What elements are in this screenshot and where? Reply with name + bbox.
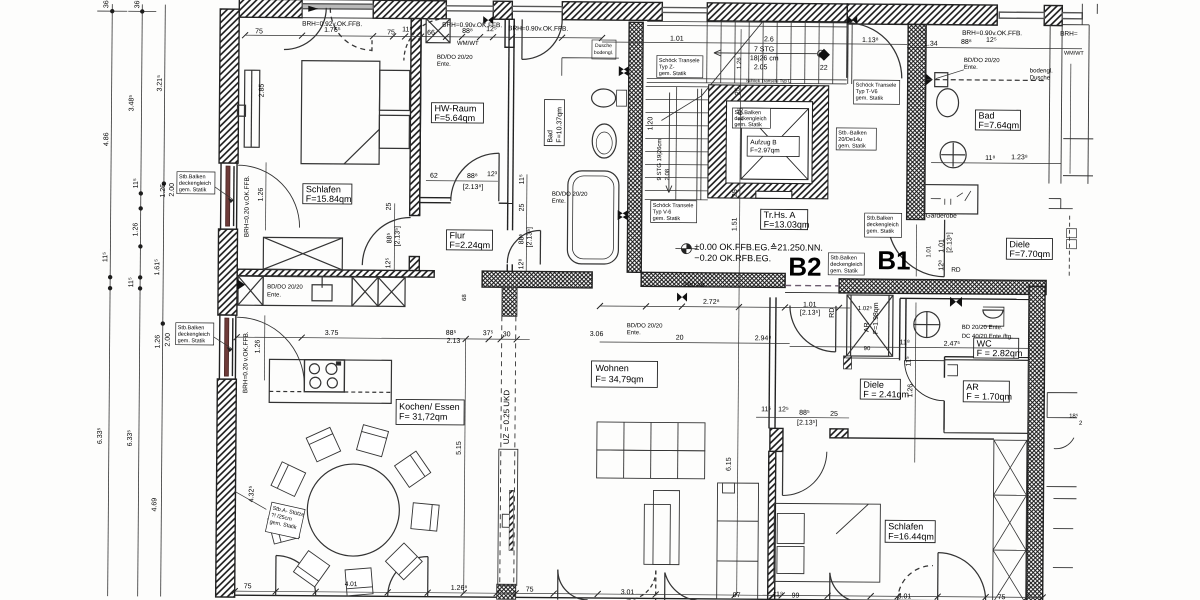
svg-text:Dusche: Dusche <box>595 43 612 49</box>
svg-text:WM/WT: WM/WT <box>1064 51 1085 57</box>
svg-text:25: 25 <box>732 189 739 197</box>
svg-text:WM/WT: WM/WT <box>457 41 479 47</box>
svg-text:gem. Statik: gem. Statik <box>659 71 687 77</box>
svg-text:07: 07 <box>733 592 741 599</box>
svg-text:BRH=: BRH= <box>1060 31 1078 38</box>
svg-text:BD/DO 20/20: BD/DO 20/20 <box>627 323 663 329</box>
svg-text:Stb.-Balken: Stb.-Balken <box>838 130 866 136</box>
svg-text:2.6: 2.6 <box>764 36 774 43</box>
svg-text:25: 25 <box>386 202 393 210</box>
svg-text:2.94⁸: 2.94⁸ <box>755 335 772 342</box>
svg-text:75: 75 <box>244 583 252 590</box>
svg-text:F= 34,79qm: F= 34,79qm <box>595 374 643 384</box>
svg-text:4.86: 4.86 <box>103 132 110 146</box>
svg-text:11⁵: 11⁵ <box>128 277 135 287</box>
svg-text:2.47⁵: 2.47⁵ <box>944 341 961 348</box>
svg-text:88⁶: 88⁶ <box>518 234 525 245</box>
svg-text:2.72⁸: 2.72⁸ <box>703 299 720 306</box>
svg-text:AR: AR <box>864 322 871 332</box>
svg-text:20: 20 <box>676 335 684 342</box>
svg-text:Ente.: Ente. <box>964 65 978 71</box>
svg-text:11⁵: 11⁵ <box>761 406 771 413</box>
svg-text:75: 75 <box>387 29 395 36</box>
svg-text:±0.00 OK.FFB.EG.≙21.250.NN.: ±0.00 OK.FFB.EG.≙21.250.NN. <box>694 242 823 253</box>
svg-text:1.26: 1.26 <box>132 223 139 237</box>
svg-text:1.76⁵: 1.76⁵ <box>324 27 341 34</box>
svg-text:3.75: 3.75 <box>325 330 339 337</box>
svg-text:4.69: 4.69 <box>151 498 158 512</box>
svg-text:BD/DO 20/20: BD/DO 20/20 <box>964 58 1000 64</box>
svg-text:[2.13⁵]: [2.13⁵] <box>797 420 818 427</box>
svg-text:F= 31,72qm: F= 31,72qm <box>399 411 447 421</box>
svg-text:deckengleich: deckengleich <box>179 181 211 187</box>
svg-text:Wohnen: Wohnen <box>595 363 628 373</box>
svg-text:UZ = 0.25 UKD: UZ = 0.25 UKD <box>502 390 511 445</box>
svg-text:BD/DO 20/20: BD/DO 20/20 <box>552 192 588 198</box>
svg-text:[2.13⁵]: [2.13⁵] <box>946 232 953 253</box>
svg-text:22: 22 <box>820 65 828 72</box>
svg-text:25: 25 <box>519 203 526 211</box>
svg-text:gem. Statik: gem. Statik <box>653 216 681 222</box>
svg-text:BD 20/20 Ente.: BD 20/20 Ente. <box>962 325 1003 331</box>
svg-text:Stb.Balken: Stb.Balken <box>830 255 857 261</box>
svg-text:30: 30 <box>503 331 511 338</box>
svg-text:6.33⁵: 6.33⁵ <box>97 427 104 444</box>
svg-text:6.33⁵: 6.33⁵ <box>127 430 134 447</box>
svg-text:Typ V-6: Typ V-6 <box>653 209 672 215</box>
svg-text:1.02⁵: 1.02⁵ <box>858 305 873 312</box>
svg-text:gem. Statik: gem. Statik <box>178 338 206 344</box>
svg-text:62: 62 <box>430 173 438 180</box>
svg-text:12⁵: 12⁵ <box>385 258 392 269</box>
svg-text:88⁵: 88⁵ <box>799 410 810 417</box>
svg-text:12⁵: 12⁵ <box>486 26 497 33</box>
svg-text:Typ Z-: Typ Z- <box>659 64 675 70</box>
svg-text:1.61⁵: 1.61⁵ <box>154 259 161 276</box>
svg-text:88⁵: 88⁵ <box>446 330 457 337</box>
svg-text:Ente.: Ente. <box>437 62 451 68</box>
svg-text:[2.13⁵]: [2.13⁵] <box>526 227 533 248</box>
svg-text:37⁵: 37⁵ <box>483 330 494 337</box>
svg-text:2.13: 2.13 <box>447 338 461 345</box>
svg-text:Ente.: Ente. <box>267 292 281 298</box>
svg-text:12⁵: 12⁵ <box>778 406 789 413</box>
svg-text:F=13.03qm: F=13.03qm <box>764 219 810 229</box>
svg-text:Schöck Transele: Schöck Transele <box>659 58 700 64</box>
svg-text:36⁵: 36⁵ <box>103 0 110 8</box>
svg-text:Schöck Transele: Schöck Transele <box>856 83 897 89</box>
svg-text:Ente.: Ente. <box>627 330 641 336</box>
svg-text:11⁵: 11⁵ <box>133 178 140 188</box>
svg-text:−0.20 OK.RFB.EG.: −0.20 OK.RFB.EG. <box>694 253 771 264</box>
svg-text:2.08: 2.08 <box>665 168 671 180</box>
svg-text:BRH=0.90v.OK.FFB.: BRH=0.90v.OK.FFB. <box>508 25 568 32</box>
svg-text:Schlafen: Schlafen <box>888 521 923 531</box>
svg-text:4.01: 4.01 <box>345 581 358 588</box>
svg-text:gem. Statik: gem. Statik <box>856 96 884 102</box>
svg-text:12⁸: 12⁸ <box>518 259 525 270</box>
svg-text:12⁸: 12⁸ <box>938 260 945 271</box>
svg-text:11⁵: 11⁵ <box>905 356 912 366</box>
svg-text:F=2.24qm: F=2.24qm <box>449 240 490 250</box>
svg-text:gem. Statik: gem. Statik <box>830 268 858 274</box>
svg-text:F = 2.41qm: F = 2.41qm <box>863 389 909 399</box>
svg-text:1.26: 1.26 <box>155 335 162 349</box>
svg-text:deckengleich: deckengleich <box>178 332 210 338</box>
svg-text:1.34: 1.34 <box>924 41 938 48</box>
svg-text:RD: RD <box>951 267 961 274</box>
svg-text:88⁵: 88⁵ <box>386 233 393 244</box>
svg-text:F=2.97qm: F=2.97qm <box>750 147 780 154</box>
svg-text:1.20: 1.20 <box>647 117 654 131</box>
svg-text:F=7.70qm: F=7.70qm <box>1009 249 1050 259</box>
svg-text:18|26 cm: 18|26 cm <box>750 55 779 62</box>
svg-text:11⁵: 11⁵ <box>519 174 526 184</box>
svg-text:[2.13⁸]: [2.13⁸] <box>463 184 484 191</box>
svg-text:88⁸: 88⁸ <box>961 39 972 46</box>
svg-text:2.00: 2.00 <box>165 333 172 347</box>
svg-text:3.01: 3.01 <box>621 589 635 596</box>
svg-text:bodengl.: bodengl. <box>1030 68 1053 74</box>
svg-text:66: 66 <box>427 30 435 37</box>
svg-text:25: 25 <box>830 411 838 418</box>
svg-text:2.00: 2.00 <box>169 183 176 197</box>
svg-text:RD: RD <box>829 308 836 318</box>
svg-text:gem. Statik: gem. Statik <box>734 122 762 128</box>
svg-text:deckengleich: deckengleich <box>830 262 862 268</box>
svg-text:B1: B1 <box>877 245 910 275</box>
svg-text:Schlick Transele Typ L: Schlick Transele Typ L <box>746 78 791 83</box>
svg-text:11⁸: 11⁸ <box>773 591 783 598</box>
svg-text:1.65: 1.65 <box>737 107 744 121</box>
svg-text:Kochen/ Essen: Kochen/ Essen <box>399 401 460 411</box>
svg-text:deckengleich: deckengleich <box>867 222 899 228</box>
svg-text:gem. Statik: gem. Statik <box>179 187 207 193</box>
svg-text:1.23⁸: 1.23⁸ <box>1011 154 1028 161</box>
svg-text:[2.13⁵]: [2.13⁵] <box>800 310 821 317</box>
svg-text:88⁸: 88⁸ <box>467 173 478 180</box>
svg-text:11⁵: 11⁵ <box>102 252 109 262</box>
svg-text:6.15: 6.15 <box>726 457 733 471</box>
svg-text:5.15: 5.15 <box>456 441 463 455</box>
svg-text:[2.13⁵]: [2.13⁵] <box>394 226 401 247</box>
svg-text:90: 90 <box>864 346 871 352</box>
svg-text:3.06: 3.06 <box>590 331 604 338</box>
svg-text:1.26: 1.26 <box>160 184 167 198</box>
svg-text:75: 75 <box>998 594 1006 600</box>
svg-text:BRH=0.20 v.OK.FFB.: BRH=0.20 v.OK.FFB. <box>243 175 250 237</box>
svg-text:gem. Statik: gem. Statik <box>867 229 895 235</box>
svg-text:75: 75 <box>526 586 534 593</box>
svg-text:1.01: 1.01 <box>670 36 684 43</box>
svg-text:DC 40/20 Ente./ftg.: DC 40/20 Ente./ftg. <box>962 334 1013 340</box>
svg-text:25: 25 <box>735 87 742 95</box>
svg-text:Stb.Balken: Stb.Balken <box>867 216 894 222</box>
svg-text:12³: 12³ <box>487 171 498 178</box>
svg-text:2.85: 2.85 <box>259 84 266 98</box>
svg-text:1.51: 1.51 <box>732 217 739 231</box>
svg-text:3.48⁵: 3.48⁵ <box>128 95 135 112</box>
svg-text:BRH=0.20 v.OK.FFB.: BRH=0.20 v.OK.FFB. <box>242 331 249 393</box>
svg-text:99: 99 <box>792 593 800 600</box>
svg-text:7 STG: 7 STG <box>754 46 774 53</box>
svg-text:1.01: 1.01 <box>926 245 932 257</box>
svg-text:75: 75 <box>255 28 263 35</box>
svg-text:FB0 AB: FB0 AB <box>684 283 704 289</box>
svg-text:F=15.84qm: F=15.84qm <box>306 194 352 204</box>
svg-text:68: 68 <box>462 294 468 301</box>
svg-text:F=7.64qm: F=7.64qm <box>978 120 1019 130</box>
svg-text:Stb.Balken: Stb.Balken <box>179 174 206 180</box>
svg-text:1.26⁸: 1.26⁸ <box>451 585 468 592</box>
svg-text:3.01: 3.01 <box>898 593 912 600</box>
svg-text:F=16.44qm: F=16.44qm <box>888 531 934 541</box>
svg-text:Bad: Bad <box>547 130 554 143</box>
svg-text:B2: B2 <box>788 251 821 281</box>
svg-text:Typ T-V6: Typ T-V6 <box>856 89 878 95</box>
svg-text:2.05: 2.05 <box>754 64 768 71</box>
svg-text:2: 2 <box>1079 421 1083 427</box>
svg-text:F=5.64qm: F=5.64qm <box>434 113 475 123</box>
svg-text:11⁸: 11⁸ <box>900 339 910 346</box>
svg-text:20/De14u: 20/De14u <box>838 137 862 143</box>
svg-text:11⁸: 11⁸ <box>985 155 995 162</box>
svg-text:Aufzug B: Aufzug B <box>750 139 776 146</box>
svg-text:Stb.Balken: Stb.Balken <box>178 325 205 331</box>
svg-text:F=10.37qm: F=10.37qm <box>556 107 563 143</box>
svg-text:36⁵: 36⁵ <box>134 0 141 8</box>
svg-text:18⁵: 18⁵ <box>1069 413 1079 420</box>
svg-text:F = 1.70qm: F = 1.70qm <box>966 391 1012 401</box>
svg-text:1.26: 1.26 <box>255 340 262 354</box>
svg-text:gem. Statik: gem. Statik <box>838 143 866 149</box>
svg-text:F = 2.82qm: F = 2.82qm <box>977 348 1023 358</box>
svg-text:1.01: 1.01 <box>803 302 817 309</box>
svg-text:11⁸: 11⁸ <box>402 26 412 33</box>
svg-text:88⁸: 88⁸ <box>462 28 473 35</box>
svg-text:BD/DO 20/20: BD/DO 20/20 <box>437 55 473 61</box>
svg-text:F=1.98qm: F=1.98qm <box>873 302 880 334</box>
svg-text:Schöck Transele: Schöck Transele <box>653 203 694 209</box>
svg-text:Ente.: Ente. <box>552 199 566 205</box>
svg-text:1.26: 1.26 <box>258 188 265 202</box>
svg-text:BD/DO 20/20: BD/DO 20/20 <box>267 284 303 290</box>
svg-text:9 STG 19|26cm: 9 STG 19|26cm <box>657 139 663 181</box>
svg-text:1.01: 1.01 <box>938 239 945 253</box>
svg-text:Dusche: Dusche <box>1030 75 1051 81</box>
svg-text:1.26: 1.26 <box>737 57 743 69</box>
svg-text:3.21⁵: 3.21⁵ <box>157 75 164 92</box>
svg-text:bodengl.: bodengl. <box>594 50 613 56</box>
svg-text:12⁵: 12⁵ <box>986 37 997 44</box>
svg-text:1.13⁸: 1.13⁸ <box>862 37 879 44</box>
svg-text:1.26: 1.26 <box>907 384 914 398</box>
